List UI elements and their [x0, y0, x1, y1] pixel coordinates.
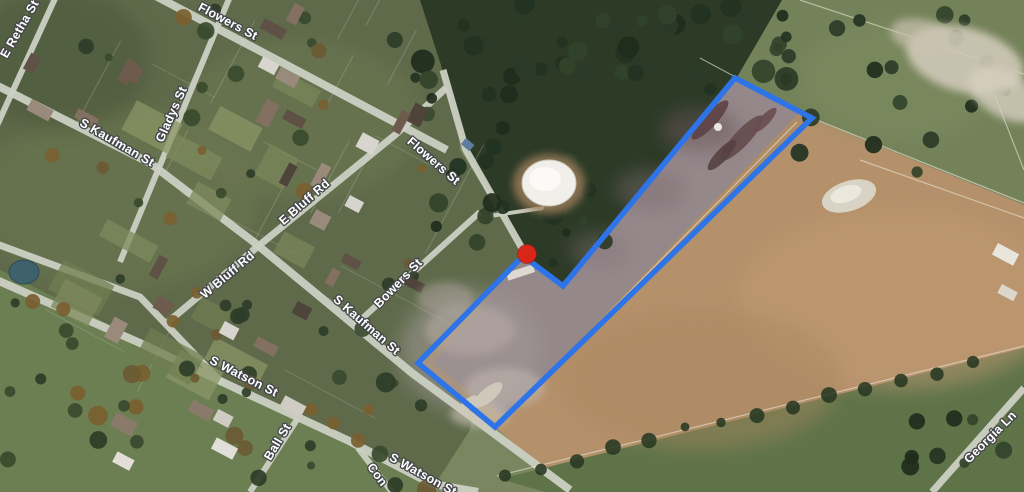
map-viewport[interactable]: E Retha StFlowers StGladys StS Kaufman S… [0, 0, 1024, 492]
water-tank-highlight [529, 167, 561, 191]
tree [411, 49, 435, 73]
tree [78, 39, 94, 55]
tree [821, 387, 837, 403]
tree [894, 374, 908, 388]
tree [327, 416, 340, 429]
tree [35, 373, 46, 384]
tree [959, 14, 971, 26]
tree [351, 433, 365, 447]
tree [516, 13, 536, 33]
tree [749, 408, 764, 423]
tree [777, 10, 789, 22]
tree [965, 100, 978, 113]
debris-spot [714, 123, 722, 131]
tree [499, 470, 511, 482]
tree [220, 300, 232, 312]
tree [89, 431, 107, 449]
tree [469, 234, 486, 251]
tree [318, 100, 329, 111]
tree [45, 148, 59, 162]
tree [419, 70, 437, 88]
tree [618, 37, 640, 59]
tree [775, 67, 799, 91]
tree [781, 49, 795, 63]
tree [716, 418, 725, 427]
tree [246, 169, 255, 178]
tree [228, 65, 245, 82]
tree [304, 403, 317, 416]
tree [418, 164, 427, 173]
tree [134, 198, 143, 207]
tree [118, 400, 130, 412]
tree [376, 372, 396, 392]
tree [478, 153, 494, 169]
tree [557, 37, 568, 48]
ground-smudge [417, 282, 473, 314]
tree [865, 136, 882, 153]
satellite-map-image: E Retha StFlowers StGladys StS Kaufman S… [0, 0, 1024, 492]
tree [510, 52, 525, 67]
tree [190, 374, 199, 383]
tree [305, 440, 316, 451]
tree [534, 62, 548, 76]
tree [216, 188, 227, 199]
tree [901, 457, 919, 475]
tree [319, 326, 329, 336]
tree [967, 356, 979, 368]
tree [197, 146, 206, 155]
tree [885, 60, 899, 74]
tree [197, 22, 214, 39]
tree [464, 36, 484, 56]
tree [535, 464, 547, 476]
tree [641, 433, 656, 448]
tree [858, 382, 872, 396]
tree [5, 386, 16, 397]
tree [740, 8, 761, 29]
tree [250, 470, 266, 486]
tree [658, 5, 677, 24]
tree [893, 95, 908, 110]
tree [967, 414, 978, 425]
tree [175, 9, 192, 26]
tree [853, 14, 866, 27]
tree [936, 6, 954, 24]
tree [909, 413, 925, 429]
tree [311, 43, 326, 58]
tree [115, 274, 125, 284]
tree [867, 62, 883, 78]
tree [923, 131, 940, 148]
tree [217, 394, 227, 404]
tree [929, 448, 946, 465]
tree [179, 360, 195, 376]
tree [70, 386, 85, 401]
tree [485, 139, 501, 155]
tree [167, 315, 179, 327]
tree [128, 399, 143, 414]
tree [88, 406, 108, 426]
tree [636, 15, 647, 26]
tree [548, 258, 557, 267]
tree [605, 439, 621, 455]
tree [995, 442, 1012, 459]
tree [723, 24, 743, 44]
tree [234, 307, 249, 322]
tree [946, 410, 962, 426]
terrain-mottle [615, 170, 685, 210]
tree [786, 401, 800, 415]
tree [237, 440, 253, 456]
tree [123, 365, 141, 383]
tree [332, 370, 347, 385]
tree [791, 144, 809, 162]
tree [415, 399, 427, 411]
property-location-marker[interactable] [518, 245, 537, 264]
tree [752, 60, 775, 83]
tree [0, 451, 16, 467]
tree [11, 298, 20, 307]
tree [577, 64, 594, 81]
tree [580, 216, 588, 224]
tree [25, 294, 40, 309]
tree [568, 42, 587, 61]
tree [196, 82, 207, 93]
tree [627, 65, 643, 81]
tree [429, 193, 448, 212]
tree [66, 337, 79, 350]
tree [68, 403, 83, 418]
terrain-mottle [560, 310, 840, 450]
tree [483, 193, 502, 212]
tree [97, 161, 109, 173]
tree [426, 93, 437, 104]
tree [307, 462, 315, 470]
tree [483, 34, 503, 54]
tree [410, 73, 420, 83]
tree [705, 83, 717, 95]
tree [56, 302, 70, 316]
tree [781, 32, 792, 43]
tree [372, 446, 389, 463]
tree [292, 130, 309, 147]
tree [500, 85, 518, 103]
tree [387, 32, 403, 48]
tree [550, 126, 563, 139]
tree [130, 435, 144, 449]
tree [431, 221, 442, 232]
tree [681, 65, 704, 88]
tree [495, 121, 509, 135]
tree [363, 404, 374, 415]
tree [562, 228, 570, 236]
tree [681, 423, 690, 432]
tree [930, 367, 943, 380]
tree [105, 53, 113, 61]
tree [183, 109, 200, 126]
tree [59, 323, 74, 338]
tree [482, 87, 497, 102]
tree [690, 4, 710, 24]
tree [911, 166, 922, 177]
pond [9, 260, 39, 284]
tree [570, 454, 584, 468]
tree [829, 20, 845, 36]
tree [596, 13, 611, 28]
tree [457, 19, 470, 32]
tree [164, 212, 177, 225]
